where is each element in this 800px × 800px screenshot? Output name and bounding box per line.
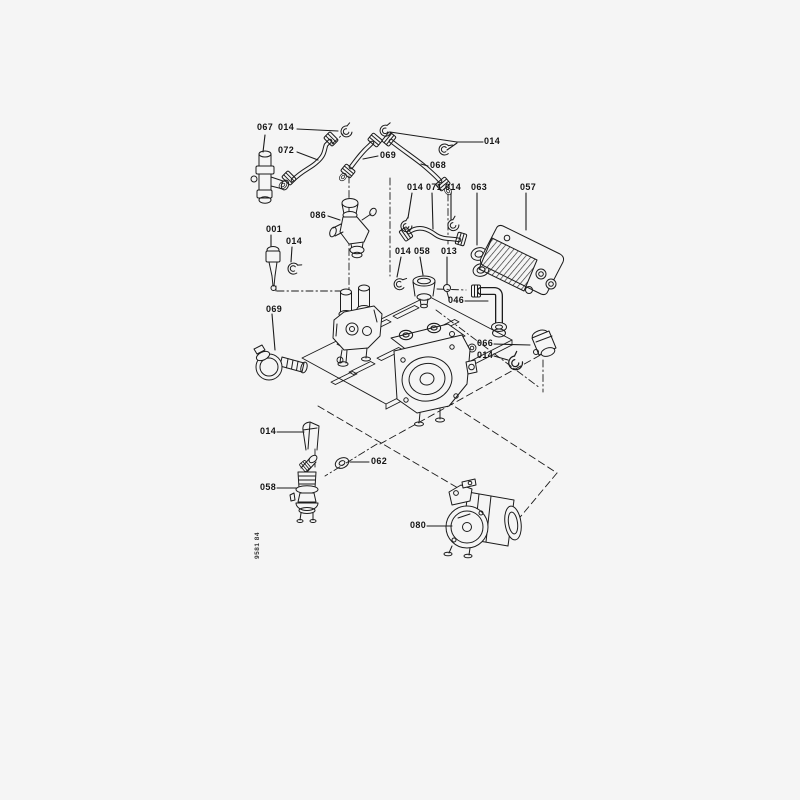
part-label-058-valve: 058 — [260, 483, 276, 492]
part-label-014-bracket: 014 — [260, 427, 276, 436]
part-label-001: 001 — [266, 225, 282, 234]
part-label-063: 063 — [471, 183, 487, 192]
part-label-068: 068 — [430, 161, 446, 170]
part-label-014-clip-71-left: 014 — [407, 183, 423, 192]
part-086-valve — [328, 199, 377, 258]
part-072-pipe — [278, 132, 339, 191]
part-label-086: 086 — [310, 211, 326, 220]
exploded-diagram-drawing — [0, 0, 800, 800]
part-label-062: 062 — [371, 457, 387, 466]
part-label-014-clip-sensor: 014 — [286, 237, 302, 246]
exploded-parts-diagram-page: 067 014 072 069 068 014 014 071 014 063 … — [0, 0, 800, 800]
part-080-pump — [444, 479, 523, 558]
part-label-057: 057 — [520, 183, 536, 192]
part-label-058-venturi: 058 — [414, 247, 430, 256]
part-062-washer — [334, 456, 351, 471]
part-label-014-clip-top-left: 014 — [278, 123, 294, 132]
part-058-venturi — [413, 276, 435, 308]
part-label-014-clips-top-right: 014 — [484, 137, 500, 146]
part-046-elbow-pipe — [472, 285, 507, 337]
part-label-072: 072 — [278, 146, 294, 155]
part-label-067: 067 — [257, 123, 273, 132]
gas-valve-assembly — [333, 285, 382, 366]
part-label-014-clip-block: 014 — [395, 247, 411, 256]
part-label-046: 046 — [448, 296, 464, 305]
document-number: 9581 84 — [254, 532, 261, 559]
part-label-071: 071 — [426, 183, 442, 192]
part-067-fitting — [251, 151, 290, 203]
part-001-sensor — [266, 247, 280, 291]
part-label-014-clip-71-right: 014 — [445, 183, 461, 192]
part-label-014-clip-66: 014 — [477, 351, 493, 360]
part-066-fitting — [531, 328, 556, 358]
part-label-069-pipe: 069 — [380, 151, 396, 160]
part-label-080: 080 — [410, 521, 426, 530]
part-label-069-motor: 069 — [266, 305, 282, 314]
part-057-heat-exchanger — [479, 225, 564, 294]
part-label-013: 013 — [441, 247, 457, 256]
part-014-bracket — [303, 422, 319, 450]
part-069-pipe — [338, 133, 382, 182]
part-label-066: 066 — [477, 339, 493, 348]
hydraulic-block — [391, 323, 477, 426]
part-069-motor — [254, 345, 308, 380]
